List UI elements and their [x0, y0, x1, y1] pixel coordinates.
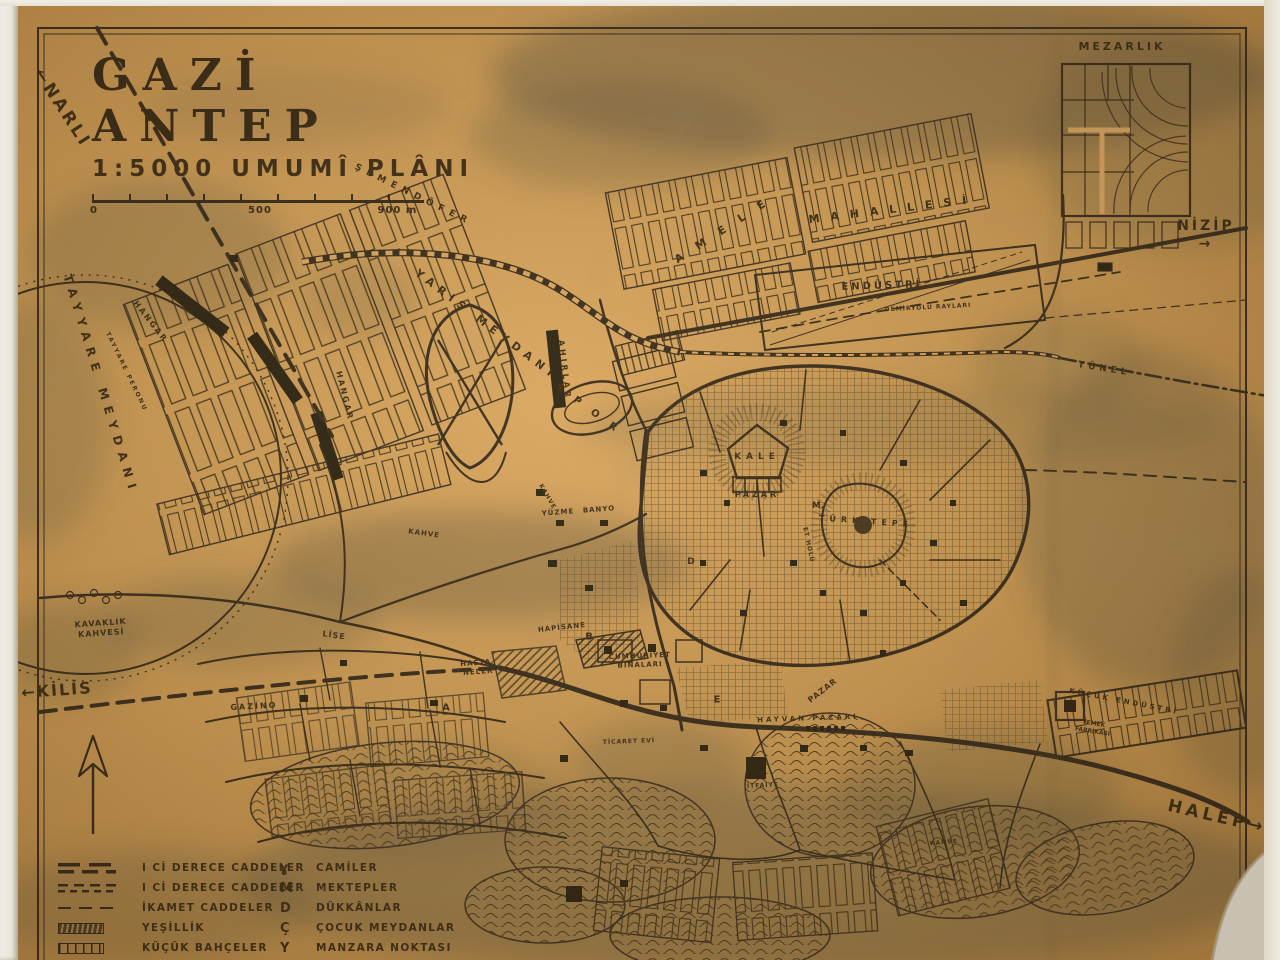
legend-row: I Cİ DERECE CADDELERMMEKTEPLER	[58, 878, 518, 898]
scale-label-start: 0	[90, 205, 98, 216]
north-arrow	[68, 730, 118, 844]
primary-road-symbol	[58, 863, 116, 874]
map-legend: I Cİ DERECE CADDELERɣCAMİLERI Cİ DERECE …	[58, 858, 518, 960]
legend-row: I Cİ DERECE CADDELERɣCAMİLER	[58, 858, 518, 878]
shop-symbol: D	[280, 901, 291, 916]
scan-margin-left	[0, 0, 18, 960]
mosque-symbol: ɣ	[280, 861, 288, 876]
legend-label: DÜKKÂNLAR	[316, 902, 402, 914]
legend-label: MEKTEPLER	[316, 882, 398, 894]
school-symbol: M	[280, 881, 293, 896]
title-block: GAZİ ANTEP 1:5000 UMUMÎ PLÂNI 0 500 900 …	[92, 50, 532, 220]
map-title: GAZİ ANTEP	[92, 50, 532, 152]
legend-label: CAMİLER	[316, 862, 378, 874]
scale-label-mid: 500	[248, 205, 272, 216]
scale-bar-line	[92, 194, 424, 203]
viewpoint-symbol: Y	[280, 941, 289, 956]
legend-row: KÜÇÜK BAHÇELERYMANZARA NOKTASI	[58, 938, 518, 958]
scale-bar: 0 500 900 m	[92, 194, 424, 220]
greenery-symbol	[58, 923, 104, 934]
legend-label: KÜÇÜK BAHÇELER	[142, 942, 268, 954]
legend-label: YEŞİLLİK	[142, 922, 205, 934]
scanned-map-page: ←NARLIMEZARLIKNİZİP →TÜNELŞEMENDÖFERAMEL…	[0, 0, 1280, 960]
legend-rows: I Cİ DERECE CADDELERɣCAMİLERI Cİ DERECE …	[58, 858, 518, 958]
small-gardens-symbol	[58, 943, 104, 954]
scan-margin-right	[1264, 0, 1280, 960]
legend-label: ÇOCUK MEYDANLAR	[316, 922, 455, 934]
legend-row: YEŞİLLİKÇÇOCUK MEYDANLAR	[58, 918, 518, 938]
legend-label: İKAMET CADDELER	[142, 902, 274, 914]
residential-road-symbol	[58, 907, 116, 910]
scale-label-end: 900 m	[378, 205, 418, 216]
map-subtitle: 1:5000 UMUMÎ PLÂNI	[92, 156, 532, 182]
scan-margin-top	[0, 0, 1280, 6]
legend-label: MANZARA NOKTASI	[316, 942, 452, 954]
legend-row: İKAMET CADDELERDDÜKKÂNLAR	[58, 898, 518, 918]
secondary-road-symbol	[58, 884, 116, 893]
playground-symbol: Ç	[280, 921, 290, 936]
